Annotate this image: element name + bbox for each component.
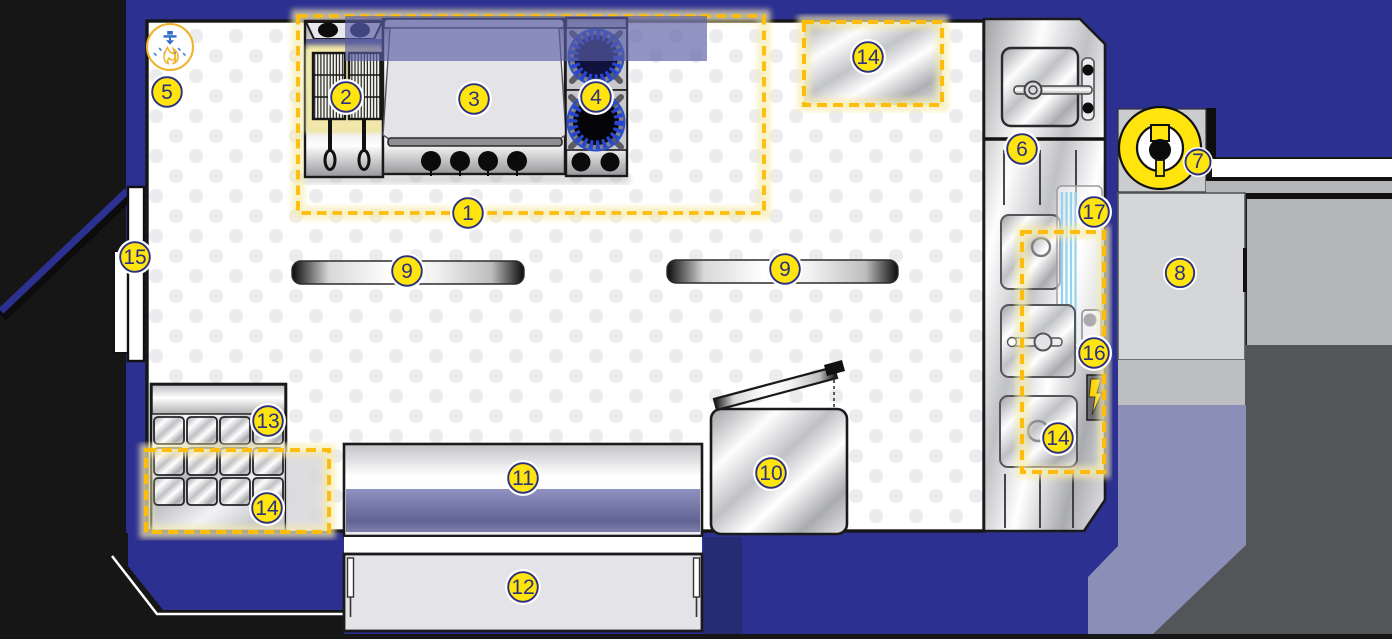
svg-text:17: 17 [1082,201,1105,224]
svg-text:15: 15 [123,246,146,269]
svg-text:9: 9 [779,258,791,281]
svg-text:7: 7 [1192,150,1204,173]
svg-text:9: 9 [401,260,413,283]
svg-text:3: 3 [468,88,480,111]
svg-text:11: 11 [512,467,534,490]
svg-text:4: 4 [590,86,602,109]
svg-text:8: 8 [1174,262,1186,285]
svg-text:14: 14 [856,46,880,69]
svg-text:13: 13 [256,410,279,433]
svg-text:2: 2 [340,86,352,109]
svg-text:10: 10 [759,462,782,485]
svg-text:12: 12 [511,576,534,599]
svg-text:5: 5 [161,81,173,104]
svg-text:14: 14 [1046,427,1070,450]
svg-text:14: 14 [255,497,279,520]
svg-text:6: 6 [1016,138,1028,161]
svg-text:16: 16 [1082,342,1105,365]
svg-text:1: 1 [462,202,474,225]
